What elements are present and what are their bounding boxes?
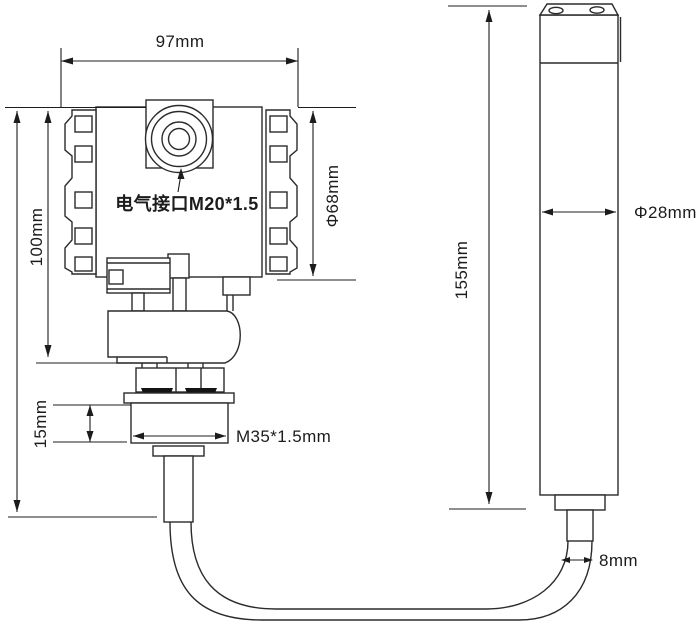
sensor-capsule bbox=[108, 311, 240, 363]
level-probe bbox=[540, 4, 621, 541]
dim-probe-height: 155mm bbox=[448, 6, 527, 509]
dim-housing-diameter-label: Φ68mm bbox=[323, 165, 342, 228]
dimension-drawing: 97mm 100mm Φ68mm 电气接口M20*1.5 bbox=[0, 0, 700, 629]
conduit-entry-outer-ring bbox=[146, 106, 213, 173]
seal-gasket-right bbox=[185, 388, 217, 393]
dim-housing-width: 97mm bbox=[61, 32, 298, 107]
dim-cable-diameter: 8mm bbox=[561, 551, 638, 570]
dim-housing-width-label: 97mm bbox=[156, 32, 205, 51]
connection-cable bbox=[170, 522, 592, 620]
cable-gland-collar bbox=[153, 446, 204, 456]
electrical-port-label: 电气接口M20*1.5 bbox=[115, 193, 258, 214]
mounting-flange bbox=[124, 393, 234, 403]
dim-probe-diameter-label: Φ28mm bbox=[634, 203, 697, 222]
cable-inner-edge bbox=[191, 522, 568, 609]
probe-cable-gland bbox=[567, 510, 593, 541]
dim-probe-height-label: 155mm bbox=[452, 241, 471, 300]
dim-housing-height-label: 100mm bbox=[27, 208, 46, 267]
cable-stem bbox=[164, 456, 193, 522]
cable-outer-edge bbox=[170, 522, 592, 620]
dim-thread-spec-label: M35*1.5mm bbox=[236, 427, 331, 446]
process-connection bbox=[108, 311, 240, 522]
dim-thread-height: 15mm bbox=[31, 400, 131, 449]
dim-cable-diameter-label: 8mm bbox=[599, 551, 638, 570]
dim-thread-height-label: 15mm bbox=[31, 400, 50, 449]
seal-gasket-left bbox=[141, 388, 173, 393]
probe-body bbox=[540, 15, 618, 495]
dimension-drawing-page: 97mm 100mm Φ68mm 电气接口M20*1.5 bbox=[0, 0, 700, 629]
probe-bottom-step bbox=[555, 495, 605, 510]
threaded-body bbox=[131, 403, 228, 443]
